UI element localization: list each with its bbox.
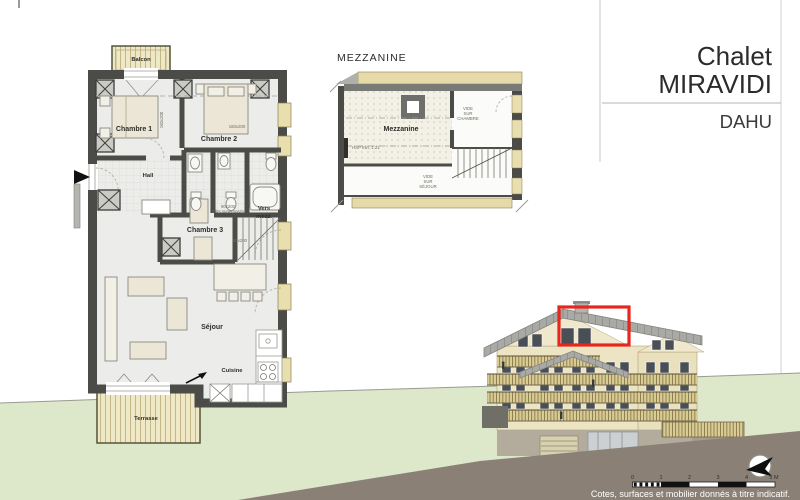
mezz-bottom-band: [352, 198, 512, 208]
scale-tick-3: 3: [716, 475, 719, 481]
void-sejour-area: [344, 165, 452, 200]
room-label-cuisine: Cuisine: [222, 368, 244, 374]
mezz-top-band: [358, 72, 522, 84]
mezz-wall-mark: [344, 138, 348, 158]
mezzanine-room-label: Mezzanine: [383, 126, 418, 133]
left-wall-window: [74, 184, 80, 228]
room-label-terrasse: Terrasse: [134, 416, 159, 422]
room-label-sejour: Séjour: [201, 324, 223, 331]
room-label-chambre1: Chambre 1: [116, 126, 152, 133]
room-label-chambre3: Chambre 3: [187, 227, 223, 234]
label-vers-mezz-line1: Vers: [258, 206, 270, 212]
title-block: Chalet MIRAVIDI DAHU: [600, 0, 781, 162]
scale-tick-4: 4: [745, 475, 748, 481]
room-label-chambre2: Chambre 2: [201, 136, 237, 143]
scale-tick-5: 5 M: [769, 475, 779, 481]
mezz-chimney: [401, 95, 425, 119]
scale-tick-1: 1: [659, 475, 662, 481]
bed3-type-note: 2 lits superposés: [212, 209, 244, 214]
label-vers-mezz-line2: mezz.: [256, 214, 272, 220]
mezz-left-wall: [338, 86, 344, 205]
sheet-corner-mark: [18, 0, 20, 8]
disclaimer-text: Cotes, surfaces et mobilier donnés à tit…: [591, 489, 790, 499]
mezz-top-wall: [344, 84, 522, 91]
void-areas: [452, 91, 512, 200]
scale-tick-0: 0: [631, 475, 634, 481]
void-sejour-line3: SÉJOUR: [419, 184, 436, 189]
scale-tick-2: 2: [688, 475, 691, 481]
plan-sheet: Chalet MIRAVIDI DAHU: [0, 0, 800, 500]
project-title-line1: Chalet: [697, 41, 773, 71]
mezz-right-wall: [512, 91, 522, 200]
bed1-size-note: 160x200: [159, 111, 164, 128]
hsp-note: HSP min. 1.21: [352, 145, 380, 150]
room-label-hall: Hall: [143, 173, 154, 179]
apartment-name: DAHU: [720, 111, 772, 132]
floor-plan: Balcon Terrasse: [74, 46, 291, 443]
drawing-canvas: Chalet MIRAVIDI DAHU: [0, 0, 800, 500]
mezzanine-plan: MEZZANINE: [330, 52, 528, 212]
bed2-size-note: 160x200: [229, 124, 246, 129]
mezzanine-title: MEZZANINE: [337, 52, 407, 64]
room-label-balcon: Balcon: [131, 57, 151, 63]
project-title-line2: MIRAVIDI: [658, 69, 772, 99]
void-chambre-line3: CHAMBRE: [457, 116, 479, 121]
bed4-size-note: 90x200: [233, 238, 248, 243]
